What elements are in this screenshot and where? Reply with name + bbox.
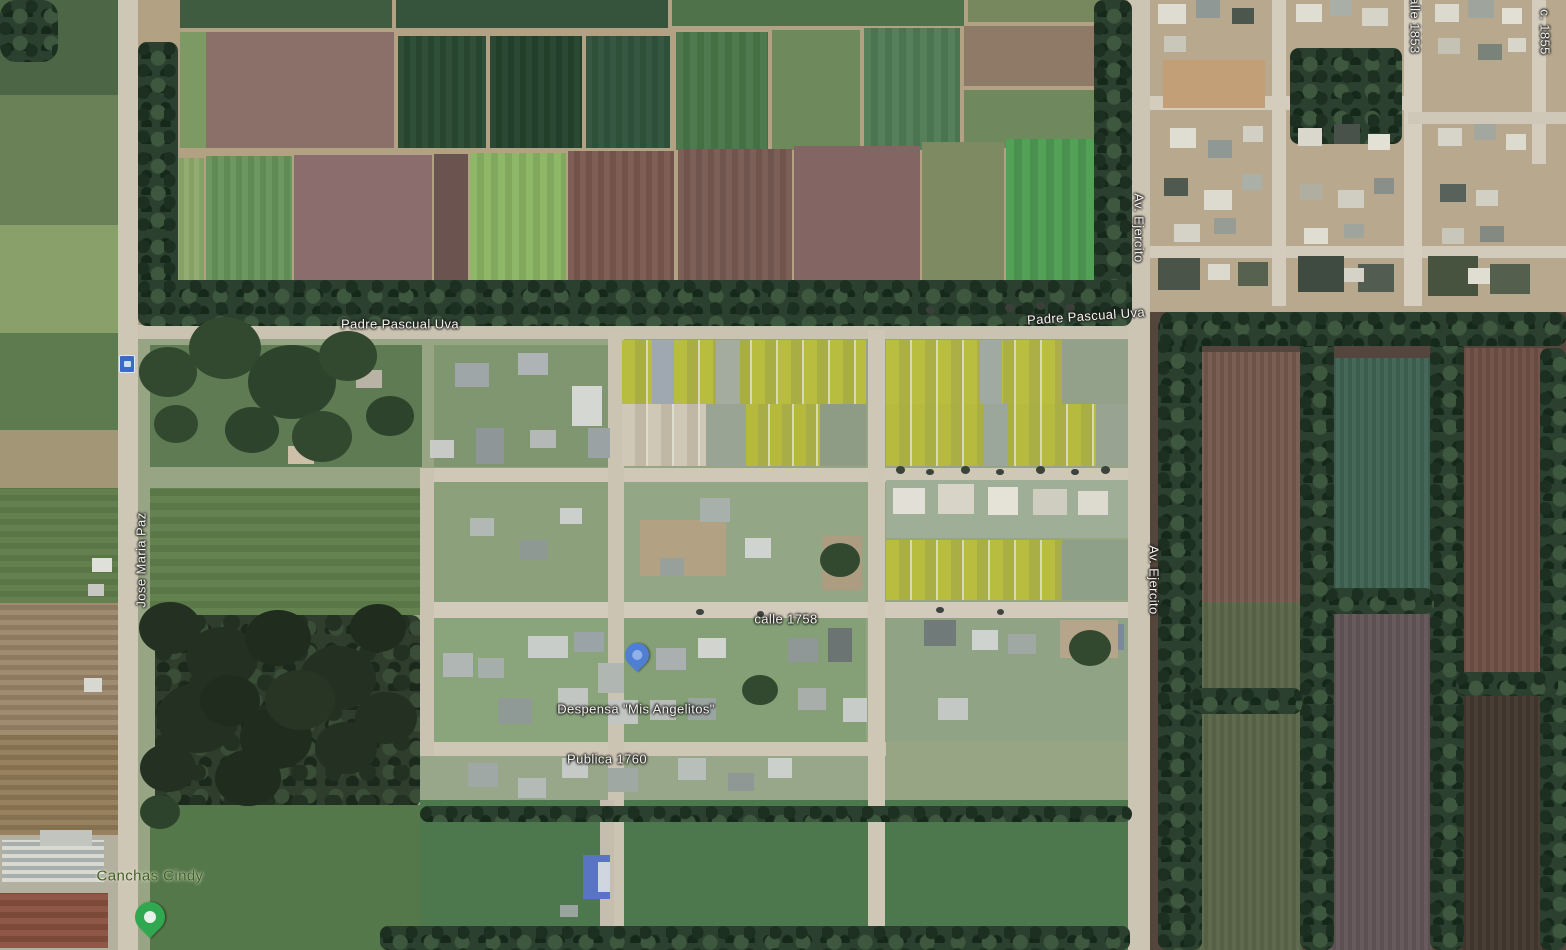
building (1362, 8, 1388, 26)
building (1164, 36, 1186, 52)
building (498, 698, 532, 724)
canchas-cindy-pin-icon (129, 896, 171, 938)
field-patch (794, 146, 920, 293)
tree-blob (820, 543, 860, 577)
street-label-jose-maria-paz: Jose Maria Paz (134, 512, 149, 607)
building (1344, 268, 1364, 282)
road (868, 330, 885, 950)
tree-blob (961, 466, 970, 474)
canchas-cindy-pin[interactable] (135, 902, 165, 932)
tree-blob (140, 795, 180, 829)
tree-blob (215, 750, 281, 806)
garden-patch (1490, 264, 1530, 294)
tree-row (380, 926, 1130, 950)
street-label-publica-1760: Publica 1760 (567, 752, 647, 767)
greenhouse (2, 840, 104, 882)
building (572, 386, 602, 426)
building (938, 484, 974, 514)
street-label-calle-1758: calle 1758 (754, 612, 817, 627)
tree-row (1540, 348, 1566, 950)
tree-blob (1036, 466, 1045, 474)
building (560, 508, 582, 524)
building (40, 830, 92, 846)
tree-row (420, 806, 1132, 822)
surveyed-lots (746, 404, 820, 466)
building (443, 653, 473, 677)
building (1468, 268, 1490, 284)
street-label-av-ejercito: Av. Ejercito (1147, 545, 1162, 614)
field-patch (1006, 139, 1106, 293)
field-patch (0, 735, 118, 835)
building (698, 638, 726, 658)
road-padre-pascual-uva (138, 325, 1150, 339)
building (1344, 224, 1364, 238)
building (1480, 226, 1504, 242)
tree-row (1094, 0, 1132, 306)
building (893, 488, 925, 514)
building (843, 698, 867, 722)
tree-row (1190, 688, 1302, 714)
building (478, 658, 504, 678)
field-patch (294, 155, 432, 293)
building (1438, 128, 1462, 146)
building (455, 363, 489, 387)
poi-label-canchas-cindy[interactable]: Canchas Cindy (97, 868, 204, 885)
tree-blob (350, 604, 406, 652)
building (88, 584, 104, 596)
route-shield-icon (119, 355, 135, 373)
tree-row (1158, 318, 1202, 950)
building (1078, 491, 1108, 515)
building (798, 688, 826, 710)
building (1300, 184, 1322, 200)
building (1338, 190, 1364, 208)
despensa-pin[interactable] (625, 643, 649, 667)
building (1174, 224, 1200, 242)
building (560, 905, 578, 917)
field-patch (0, 333, 118, 430)
field-patch (964, 26, 1106, 86)
garden-patch (1238, 262, 1268, 286)
tree-row (1456, 672, 1558, 696)
building (476, 428, 504, 464)
orchard-strip (1328, 602, 1432, 950)
road-jose-maria-paz (118, 0, 138, 950)
building (92, 558, 112, 572)
tree-row (1430, 330, 1464, 950)
lot (716, 340, 740, 404)
building (768, 758, 792, 778)
street-label-padre-pascual-uva: Padre Pascual Uva (341, 317, 459, 332)
building (1243, 126, 1263, 142)
field-patch (0, 95, 118, 225)
building (1502, 8, 1522, 24)
tree-blob (139, 347, 197, 396)
lot (980, 340, 1002, 404)
lot (1062, 540, 1128, 600)
building (828, 628, 852, 662)
building (1298, 128, 1322, 146)
lot (1062, 340, 1128, 404)
despensa-pin-icon (620, 638, 654, 672)
lot (984, 404, 1008, 466)
building (972, 630, 998, 650)
building (518, 778, 546, 798)
building (530, 430, 556, 448)
building (1468, 0, 1494, 18)
road (1150, 246, 1566, 258)
field-patch (398, 36, 486, 148)
tree-blob (292, 411, 352, 462)
building (788, 638, 818, 662)
building (1442, 228, 1464, 244)
field-patch (180, 0, 392, 28)
building (1440, 184, 1466, 202)
tree-blob (1069, 630, 1111, 666)
tree-blob (742, 675, 778, 706)
building (1158, 4, 1186, 24)
road (1408, 112, 1566, 124)
building (660, 558, 684, 576)
road-publica-1760 (420, 742, 886, 756)
building (656, 648, 686, 670)
field-patch (922, 142, 1004, 293)
building (1334, 124, 1360, 144)
garden-patch (1158, 258, 1200, 290)
building (598, 862, 610, 892)
tree-blob (140, 744, 196, 792)
building (518, 353, 548, 375)
building (470, 518, 494, 536)
building (678, 758, 706, 780)
tree-blob (225, 407, 279, 453)
building (588, 428, 610, 458)
building (1208, 264, 1230, 280)
field-patch (434, 154, 468, 293)
tree-blob (1101, 466, 1110, 474)
orchard-strip (1192, 352, 1302, 602)
building (924, 620, 956, 646)
building (1208, 140, 1232, 158)
building (1296, 4, 1322, 22)
building (520, 540, 548, 560)
lot (1096, 404, 1128, 466)
lot (706, 404, 746, 466)
field-patch (864, 28, 960, 150)
tree-row (1300, 330, 1334, 950)
satellite-map[interactable]: Padre Pascual UvaPadre Pascual UvaJose M… (0, 0, 1566, 950)
tree-blob (319, 331, 377, 380)
dirt-lot (1163, 60, 1265, 108)
tree-blob (1036, 302, 1045, 310)
road (1272, 0, 1286, 306)
building (1008, 634, 1036, 654)
tree-row (1326, 588, 1434, 614)
tree-row (138, 280, 1132, 326)
building (1214, 218, 1236, 234)
building (1438, 38, 1460, 54)
building (1242, 174, 1262, 190)
lot (820, 404, 866, 466)
field-patch (586, 36, 670, 148)
building (1508, 38, 1526, 52)
tree-blob (200, 675, 260, 726)
building (1435, 4, 1459, 22)
tree-blob (154, 405, 198, 442)
street-label-calle-1855: c. 1855 (1538, 9, 1553, 54)
lot (652, 340, 674, 404)
building (430, 440, 454, 458)
field-patch (206, 156, 292, 292)
field-patch (150, 488, 422, 615)
building (700, 498, 730, 522)
tree-blob (366, 396, 414, 437)
tree-blob (926, 306, 935, 314)
field-patch (772, 30, 860, 150)
field-patch (676, 32, 768, 150)
poi-label-despensa-mis-angelitos[interactable]: Despensa "Mis Angelitos" (557, 702, 715, 717)
surveyed-lots (622, 404, 706, 466)
building (84, 678, 102, 692)
building (1368, 134, 1390, 150)
building (728, 773, 754, 791)
field-patch (0, 430, 118, 488)
tree-blob (355, 692, 417, 745)
street-label-calle-1853: calle 1853 (1408, 0, 1423, 54)
field-patch (180, 32, 394, 148)
building (1196, 0, 1220, 18)
tree-blob (896, 466, 905, 474)
field-patch (568, 151, 674, 293)
tree-blob (265, 670, 335, 730)
field-patch (180, 32, 206, 148)
tree-row (1160, 312, 1566, 346)
building (574, 632, 604, 652)
building (1304, 228, 1328, 244)
field-patch (470, 153, 566, 293)
building (938, 698, 968, 720)
building (1164, 178, 1188, 196)
field-patch (490, 36, 582, 148)
building (1033, 489, 1067, 515)
field-patch (672, 0, 964, 26)
building (608, 768, 638, 792)
building (1170, 128, 1196, 148)
field-patch (678, 149, 792, 293)
building (598, 663, 624, 693)
building (1204, 190, 1232, 210)
street-label-av-ejercito: Av. Ejercito (1132, 193, 1147, 262)
tree-patch (0, 0, 58, 62)
building (1330, 0, 1352, 16)
building (745, 538, 771, 558)
red-roof-building (0, 893, 108, 948)
road (420, 468, 434, 756)
orchard-strip (1192, 602, 1302, 950)
building (1374, 178, 1394, 194)
building (1474, 124, 1496, 140)
building (1506, 134, 1526, 150)
field-patch (0, 603, 118, 735)
tree-blob (997, 609, 1004, 615)
field-patch (968, 0, 1106, 22)
building (468, 763, 498, 787)
field-patch (0, 225, 118, 333)
garden-patch (1298, 256, 1344, 292)
orchard-strip (1328, 358, 1432, 602)
tree-row (138, 42, 178, 294)
building (1478, 44, 1502, 60)
tree-blob (245, 610, 311, 666)
building (1232, 8, 1254, 24)
building (1476, 190, 1498, 206)
building (988, 487, 1018, 515)
building (528, 636, 568, 658)
field-patch (396, 0, 668, 28)
